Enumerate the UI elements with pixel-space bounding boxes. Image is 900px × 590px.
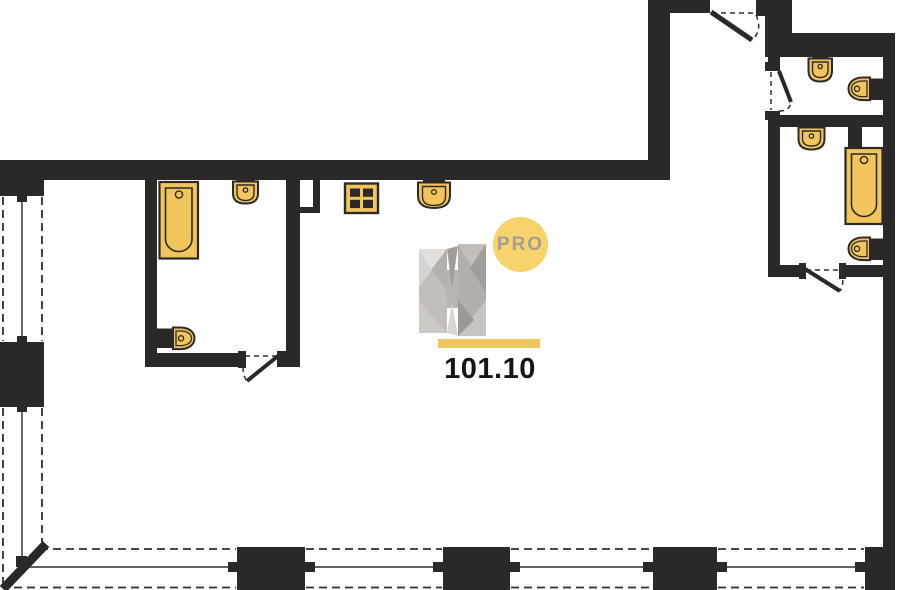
area-label: 101.10: [410, 353, 570, 386]
window-joint: [510, 562, 520, 572]
door-leaf: [711, 12, 752, 40]
stove-grid-icon: [345, 184, 378, 214]
logo-underline: [438, 339, 540, 348]
wall-segment: [300, 207, 320, 213]
wall-segment: [145, 180, 157, 367]
toilet-tank: [870, 79, 884, 101]
stove-cell: [363, 189, 373, 197]
sink-icon: [233, 179, 258, 204]
stove-frame: [345, 184, 378, 214]
floorplan-canvas: PRO 101.10: [0, 0, 900, 590]
window-joint: [228, 562, 238, 572]
sink-icon: [799, 126, 825, 150]
pro-badge: PRO: [493, 217, 548, 272]
stove-cell: [350, 189, 360, 197]
wall-segment: [286, 180, 300, 367]
window-joint: [305, 562, 315, 572]
logo: PRO 101.10: [410, 210, 570, 390]
door-leaf: [247, 356, 278, 381]
wall-segment: [648, 0, 710, 13]
door-bathroom-left: [243, 356, 278, 381]
wall-segment: [648, 0, 670, 180]
wall-segment: [843, 265, 895, 277]
wall-segment: [277, 351, 300, 367]
wall-segment: [768, 111, 780, 265]
bathtub-icon: [846, 148, 883, 224]
toilet-tank: [157, 329, 173, 349]
window-joint: [643, 562, 653, 572]
toilet-icon: [849, 78, 885, 101]
window-joint: [717, 562, 727, 572]
door-swing-arc: [752, 15, 759, 40]
wall-segment: [238, 351, 246, 368]
sink-icon: [809, 57, 833, 82]
wall-segment: [145, 353, 243, 367]
wall-pier: [653, 547, 717, 590]
window-joint: [855, 562, 865, 572]
wall-segment: [0, 342, 44, 407]
door-bathroom-upper-right: [771, 71, 791, 111]
door-entry: [711, 12, 759, 40]
wall-pier: [237, 547, 305, 590]
toilet-icon: [157, 328, 195, 350]
window-joint: [17, 336, 27, 346]
door-swing-arc: [779, 102, 791, 111]
window-joint: [17, 192, 27, 202]
wall-segment: [765, 33, 895, 57]
wall-segment: [848, 127, 862, 148]
stove-cell: [350, 200, 360, 208]
wall-segment: [756, 0, 766, 16]
toilet-icon: [849, 238, 885, 261]
window-joint: [16, 556, 27, 567]
wall-segment: [768, 115, 895, 127]
wall-segment: [768, 265, 803, 277]
stove-cell: [363, 200, 373, 208]
wall-segment: [765, 62, 780, 71]
door-leaf: [805, 269, 840, 291]
pro-badge-label: PRO: [497, 234, 544, 256]
window-strip-bottom: [14, 549, 865, 588]
door-bathroom-lower-right: [805, 269, 843, 291]
window-joint: [17, 402, 27, 412]
window-joint: [433, 562, 443, 572]
door-leaf: [779, 71, 791, 102]
wall-segment: [839, 263, 846, 279]
bathtub-icon: [160, 182, 199, 259]
wall-segment: [0, 160, 670, 180]
sink-icon: [418, 179, 450, 209]
wall-pier: [443, 547, 510, 590]
toilet-tank: [870, 239, 884, 261]
wall-pier: [865, 547, 895, 590]
